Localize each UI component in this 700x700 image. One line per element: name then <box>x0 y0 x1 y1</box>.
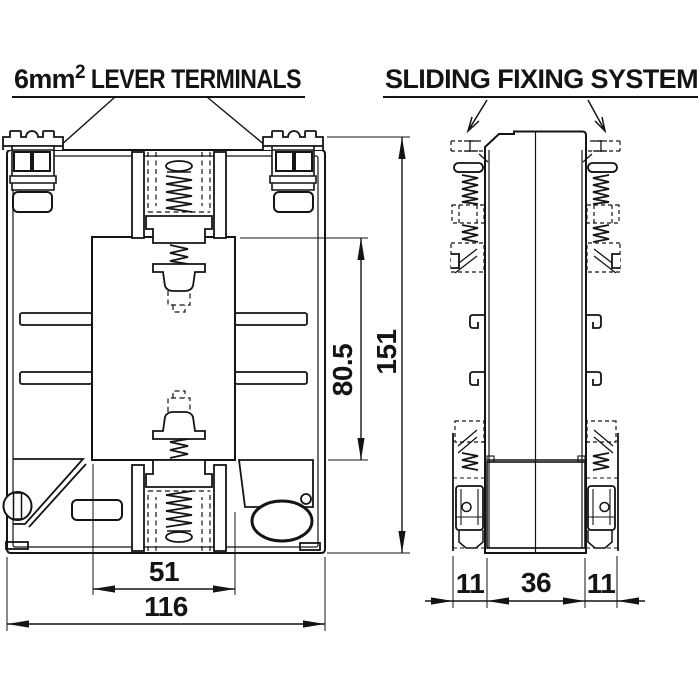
dim-11-left-label: 11 <box>456 568 485 599</box>
sliding-arrow-right <box>588 100 605 131</box>
dimension-side-widths: 11 36 11 <box>425 556 645 608</box>
side-hardware-right <box>583 140 620 551</box>
side-hardware-left <box>451 140 488 551</box>
dim-80-label: 80.5 <box>327 344 358 397</box>
dim-116-label: 116 <box>144 591 188 622</box>
panel-hook-upper <box>470 315 485 328</box>
dim-36-label: 36 <box>521 567 551 598</box>
din-clip-hidden <box>451 141 484 151</box>
mech-screw-head <box>166 161 192 171</box>
mech-rail-left <box>132 152 144 238</box>
title-sliding-fixing: SLIDING FIXING SYSTEM <box>383 64 698 131</box>
dim-11-right-label: 11 <box>587 568 616 599</box>
terminal-lever-slot <box>13 192 52 212</box>
side-view <box>451 132 620 554</box>
lever-terminals-label: 6mm2 LEVER TERMINALS <box>14 62 301 94</box>
lower-spring <box>462 453 478 470</box>
lower-slide-body <box>456 486 483 530</box>
dim-51-label: 51 <box>149 556 179 587</box>
terminal-window-b <box>33 152 50 171</box>
slide-spring <box>462 225 478 242</box>
fixing-screw-thread <box>462 175 478 204</box>
front-view <box>3 131 325 553</box>
dim-151-label: 151 <box>371 329 402 374</box>
slide-shoe-hook <box>451 254 459 268</box>
sliding-fixing-label: SLIDING FIXING SYSTEM <box>385 64 698 94</box>
drawing-canvas: 6mm2 LEVER TERMINALS SLIDING FIXING SYST… <box>0 0 700 700</box>
lower-slide-foot <box>459 530 483 548</box>
screw-slot <box>14 493 22 519</box>
panel-hook-lower <box>470 372 485 385</box>
technical-drawing-page: 6mm2 LEVER TERMINALS SLIDING FIXING SYST… <box>0 0 700 700</box>
slide-bracket-hidden <box>452 205 484 223</box>
fixing-screw-head <box>454 163 483 172</box>
sliding-arrow-left <box>468 100 487 131</box>
cable-oval-opening <box>252 501 312 541</box>
mech-rail-right <box>214 152 226 238</box>
mech-slider-block <box>146 216 212 243</box>
terminal-window-a <box>14 152 31 171</box>
lower-bracket-hidden <box>455 421 484 442</box>
